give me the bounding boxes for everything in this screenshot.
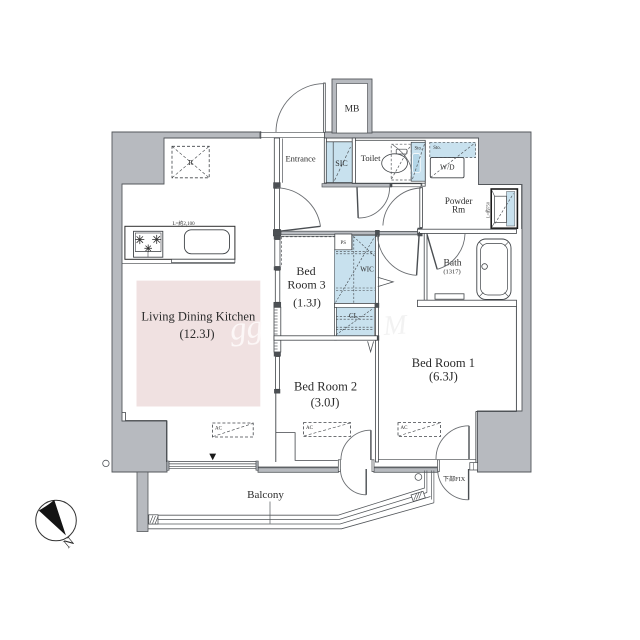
svg-text:CL: CL bbox=[349, 312, 358, 320]
svg-text:AC: AC bbox=[306, 426, 314, 431]
svg-text:Bed Room 2: Bed Room 2 bbox=[294, 380, 357, 394]
svg-text:SIC: SIC bbox=[335, 159, 347, 168]
svg-text:L=約2,100: L=約2,100 bbox=[173, 220, 196, 227]
svg-text:M: M bbox=[381, 309, 409, 342]
svg-text:WIC: WIC bbox=[360, 265, 374, 273]
svg-text:下部FIX: 下部FIX bbox=[443, 475, 466, 483]
svg-text:Toilet: Toilet bbox=[361, 153, 381, 163]
svg-text:(6.3J): (6.3J) bbox=[429, 370, 458, 384]
svg-text:Bed Room 1: Bed Room 1 bbox=[412, 356, 475, 370]
svg-text:R: R bbox=[188, 158, 193, 167]
svg-text:(1.3J): (1.3J) bbox=[293, 295, 321, 309]
svg-text:Living Dining Kitchen: Living Dining Kitchen bbox=[141, 310, 256, 324]
svg-text:Bed: Bed bbox=[296, 264, 315, 278]
svg-text:Balcony: Balcony bbox=[247, 489, 284, 501]
svg-text:MB: MB bbox=[345, 105, 360, 115]
svg-text:Sto.: Sto. bbox=[414, 146, 422, 151]
svg-text:(12.3J): (12.3J) bbox=[179, 327, 214, 341]
svg-text:L=約750: L=約750 bbox=[484, 201, 491, 218]
svg-text:Room 3: Room 3 bbox=[287, 277, 325, 291]
svg-text:Bath: Bath bbox=[444, 258, 462, 268]
svg-text:AC: AC bbox=[401, 426, 409, 431]
svg-text:(3.0J): (3.0J) bbox=[311, 396, 340, 410]
svg-text:Entrance: Entrance bbox=[285, 154, 315, 164]
svg-text:Sto.: Sto. bbox=[433, 146, 441, 151]
svg-text:(1317): (1317) bbox=[443, 269, 460, 276]
svg-text:Rm: Rm bbox=[452, 205, 465, 215]
svg-text:AC: AC bbox=[215, 427, 223, 432]
svg-text:PS: PS bbox=[341, 241, 347, 246]
